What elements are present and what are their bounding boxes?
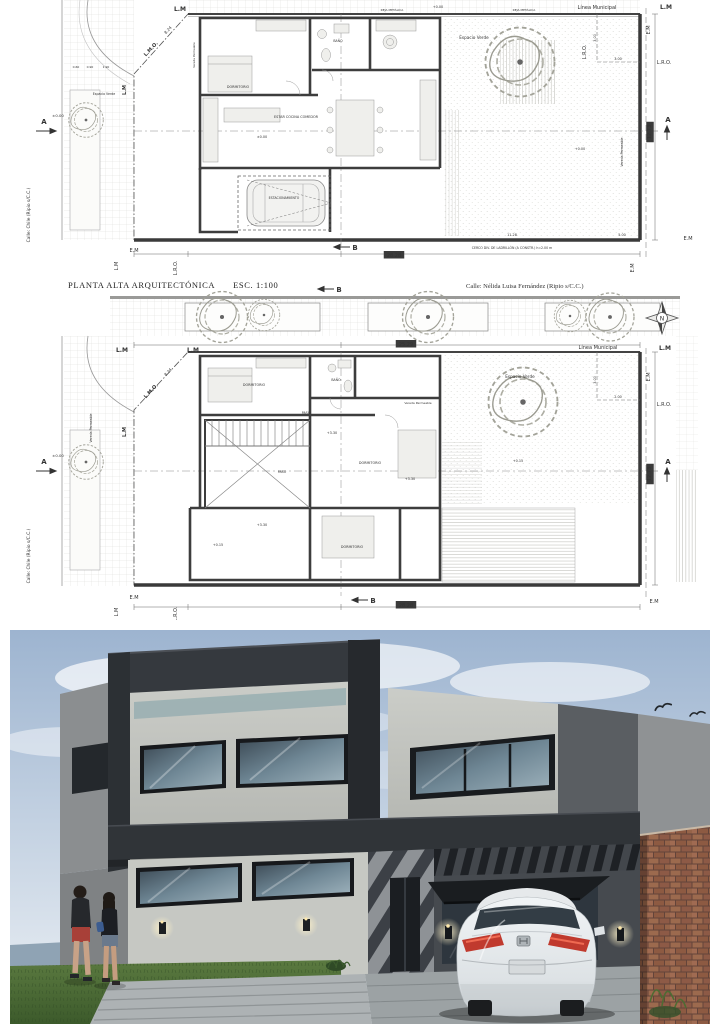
dim-label: 28.28	[399, 603, 413, 609]
em-label: E.M	[646, 25, 652, 34]
left-side-face-lower	[60, 866, 128, 976]
dim-label: 2.00	[614, 395, 622, 399]
car-wheel	[468, 1000, 492, 1016]
lm-label: L.M	[660, 4, 672, 11]
lm-label: L.M	[122, 85, 128, 95]
area-label: Espacio Verde	[505, 374, 535, 379]
fence-note: CERCO DIV. DE LADRILLÓN (A CONSTR.) h=2.…	[472, 245, 553, 250]
section-marker-b: B	[352, 244, 357, 252]
car-plan-icon	[247, 180, 331, 226]
lm-label: L.M	[187, 347, 199, 354]
plan-title: PLANTA ALTA ARQUITECTÓNICAESC. 1:100	[68, 280, 278, 290]
dim-label: 8.24	[163, 367, 173, 377]
lamp-icon	[445, 926, 452, 939]
level-label: +3.30	[257, 523, 267, 527]
floor-plan-ground: L.MLínea MunicipalL.ME.ML.R.O.L.R.O.3.00…	[26, 0, 693, 275]
area-label: Vereda Permeable	[404, 401, 431, 405]
lamp-icon	[159, 922, 166, 934]
level-label: ±0.00	[52, 453, 64, 458]
em-label: E.M	[630, 263, 636, 272]
lamp-icon	[617, 928, 624, 941]
dim-label: 8.24	[163, 25, 173, 35]
level-label: +3.30	[405, 477, 415, 481]
lm-label: L.M	[174, 6, 186, 13]
level-label: +0.15	[213, 543, 223, 547]
em-label: E.M	[129, 595, 138, 601]
ground-window-glass	[140, 867, 238, 904]
lm-label: L.M	[114, 608, 120, 617]
dim-label: 0.90	[87, 65, 94, 69]
room-label: DORMITORIO	[243, 383, 266, 387]
lm-label: L.M	[659, 345, 671, 352]
dim-label: 3.00	[593, 376, 597, 384]
room-label: PASO	[278, 470, 287, 474]
lm-label: L.M	[114, 262, 120, 271]
room-label: DORMITORIO	[227, 85, 250, 89]
room-label: ESTAR COCINA COMEDOR	[274, 115, 319, 119]
dim-label: 25.29	[399, 342, 413, 348]
dim-label: 28.28	[387, 253, 401, 259]
north-letter: N	[660, 315, 665, 322]
drawing-sheet: L.MLínea MunicipalL.ME.ML.R.O.L.R.O.3.00…	[0, 0, 724, 1024]
em-label: E.M	[683, 236, 692, 242]
dim-label: 12.73	[647, 125, 653, 139]
lm-label: L.M	[122, 427, 128, 437]
section-marker-b: B	[336, 286, 341, 294]
dim-label: 0.60	[73, 65, 80, 69]
section-marker-b: B	[370, 597, 375, 605]
car-wheel	[560, 1000, 584, 1016]
area-label: Vereda Permeable	[89, 413, 93, 442]
room-label: PASO	[302, 411, 311, 415]
lm-label: L.M	[116, 347, 128, 354]
level-label: +0.00	[433, 5, 443, 9]
section-marker-a: A	[665, 458, 671, 466]
plan-title-text: PLANTA ALTA ARQUITECTÓNICA	[68, 280, 215, 290]
fence-label: REJA METÁLICA	[513, 7, 537, 12]
em-label: E.M	[649, 599, 658, 605]
dim-label: 1.90	[103, 65, 110, 69]
street-label: Calle: Chile (Ripio s/C.C.)	[26, 187, 32, 242]
lro-label: L.R.O.	[173, 606, 179, 620]
area-label: Vereda Permeable	[192, 42, 196, 68]
fence-label: REJA METÁLICA	[381, 7, 405, 12]
lro-label: L.R.O.	[173, 260, 179, 275]
area-label: Espacio Verde	[93, 92, 115, 96]
side-window	[72, 742, 112, 794]
section-marker-a: A	[41, 118, 47, 126]
em-label: E.M	[646, 372, 652, 381]
dim-label: 3.00	[593, 34, 597, 42]
area-label: Espacio Verde	[459, 35, 489, 40]
level-label: +3.30	[327, 431, 337, 435]
lamp-icon	[303, 919, 310, 931]
room-label: BAÑO	[333, 38, 343, 43]
license-plate	[509, 960, 545, 974]
street-label: Calle: Chile (Ripio s/C.C.)	[26, 528, 32, 583]
level-label: +0.15	[513, 459, 523, 463]
em-label: E.M	[129, 248, 138, 254]
level-label: ±0.00	[52, 113, 64, 118]
lro-label: L.R.O.	[657, 60, 672, 66]
street-label-top: Calle: Nélida Luisa Fernández (Ripio s/C…	[466, 283, 584, 290]
room-label: DORMITORIO	[341, 545, 364, 549]
room-label: BAÑO	[331, 377, 341, 382]
lro-label: L.R.O.	[657, 402, 672, 408]
linea-municipal-label: Línea Municipal	[579, 344, 618, 351]
room-label: ESTACIONAMIENTO	[269, 196, 300, 200]
floor-plans: L.MLínea MunicipalL.ME.ML.R.O.L.R.O.3.00…	[0, 0, 724, 620]
brick-wall	[640, 826, 710, 1024]
plan-scale: ESC. 1:100	[233, 280, 278, 290]
section-marker-a: A	[665, 116, 671, 124]
exterior-render	[10, 630, 710, 1024]
level-label: ±0.00	[257, 135, 267, 139]
dim-label: 5.00	[618, 233, 626, 237]
area-label: Vereda Permeable	[620, 137, 624, 166]
section-marker-a: A	[41, 458, 47, 466]
lmo-label: L.M.O.	[143, 383, 160, 400]
level-label: +0.00	[575, 147, 585, 151]
lro-label: L.R.O.	[582, 44, 588, 59]
dim-label: 11.28	[507, 233, 517, 237]
dim-label: 3.00	[614, 57, 622, 61]
floor-plan-upper: N B25.29L.ML.MLínea MunicipalL.ME.ML.R.O…	[26, 286, 698, 620]
room-label: DORMITORIO	[359, 461, 382, 465]
linea-municipal-label: Línea Municipal	[578, 4, 617, 11]
dim-label: 12.73	[647, 467, 653, 481]
